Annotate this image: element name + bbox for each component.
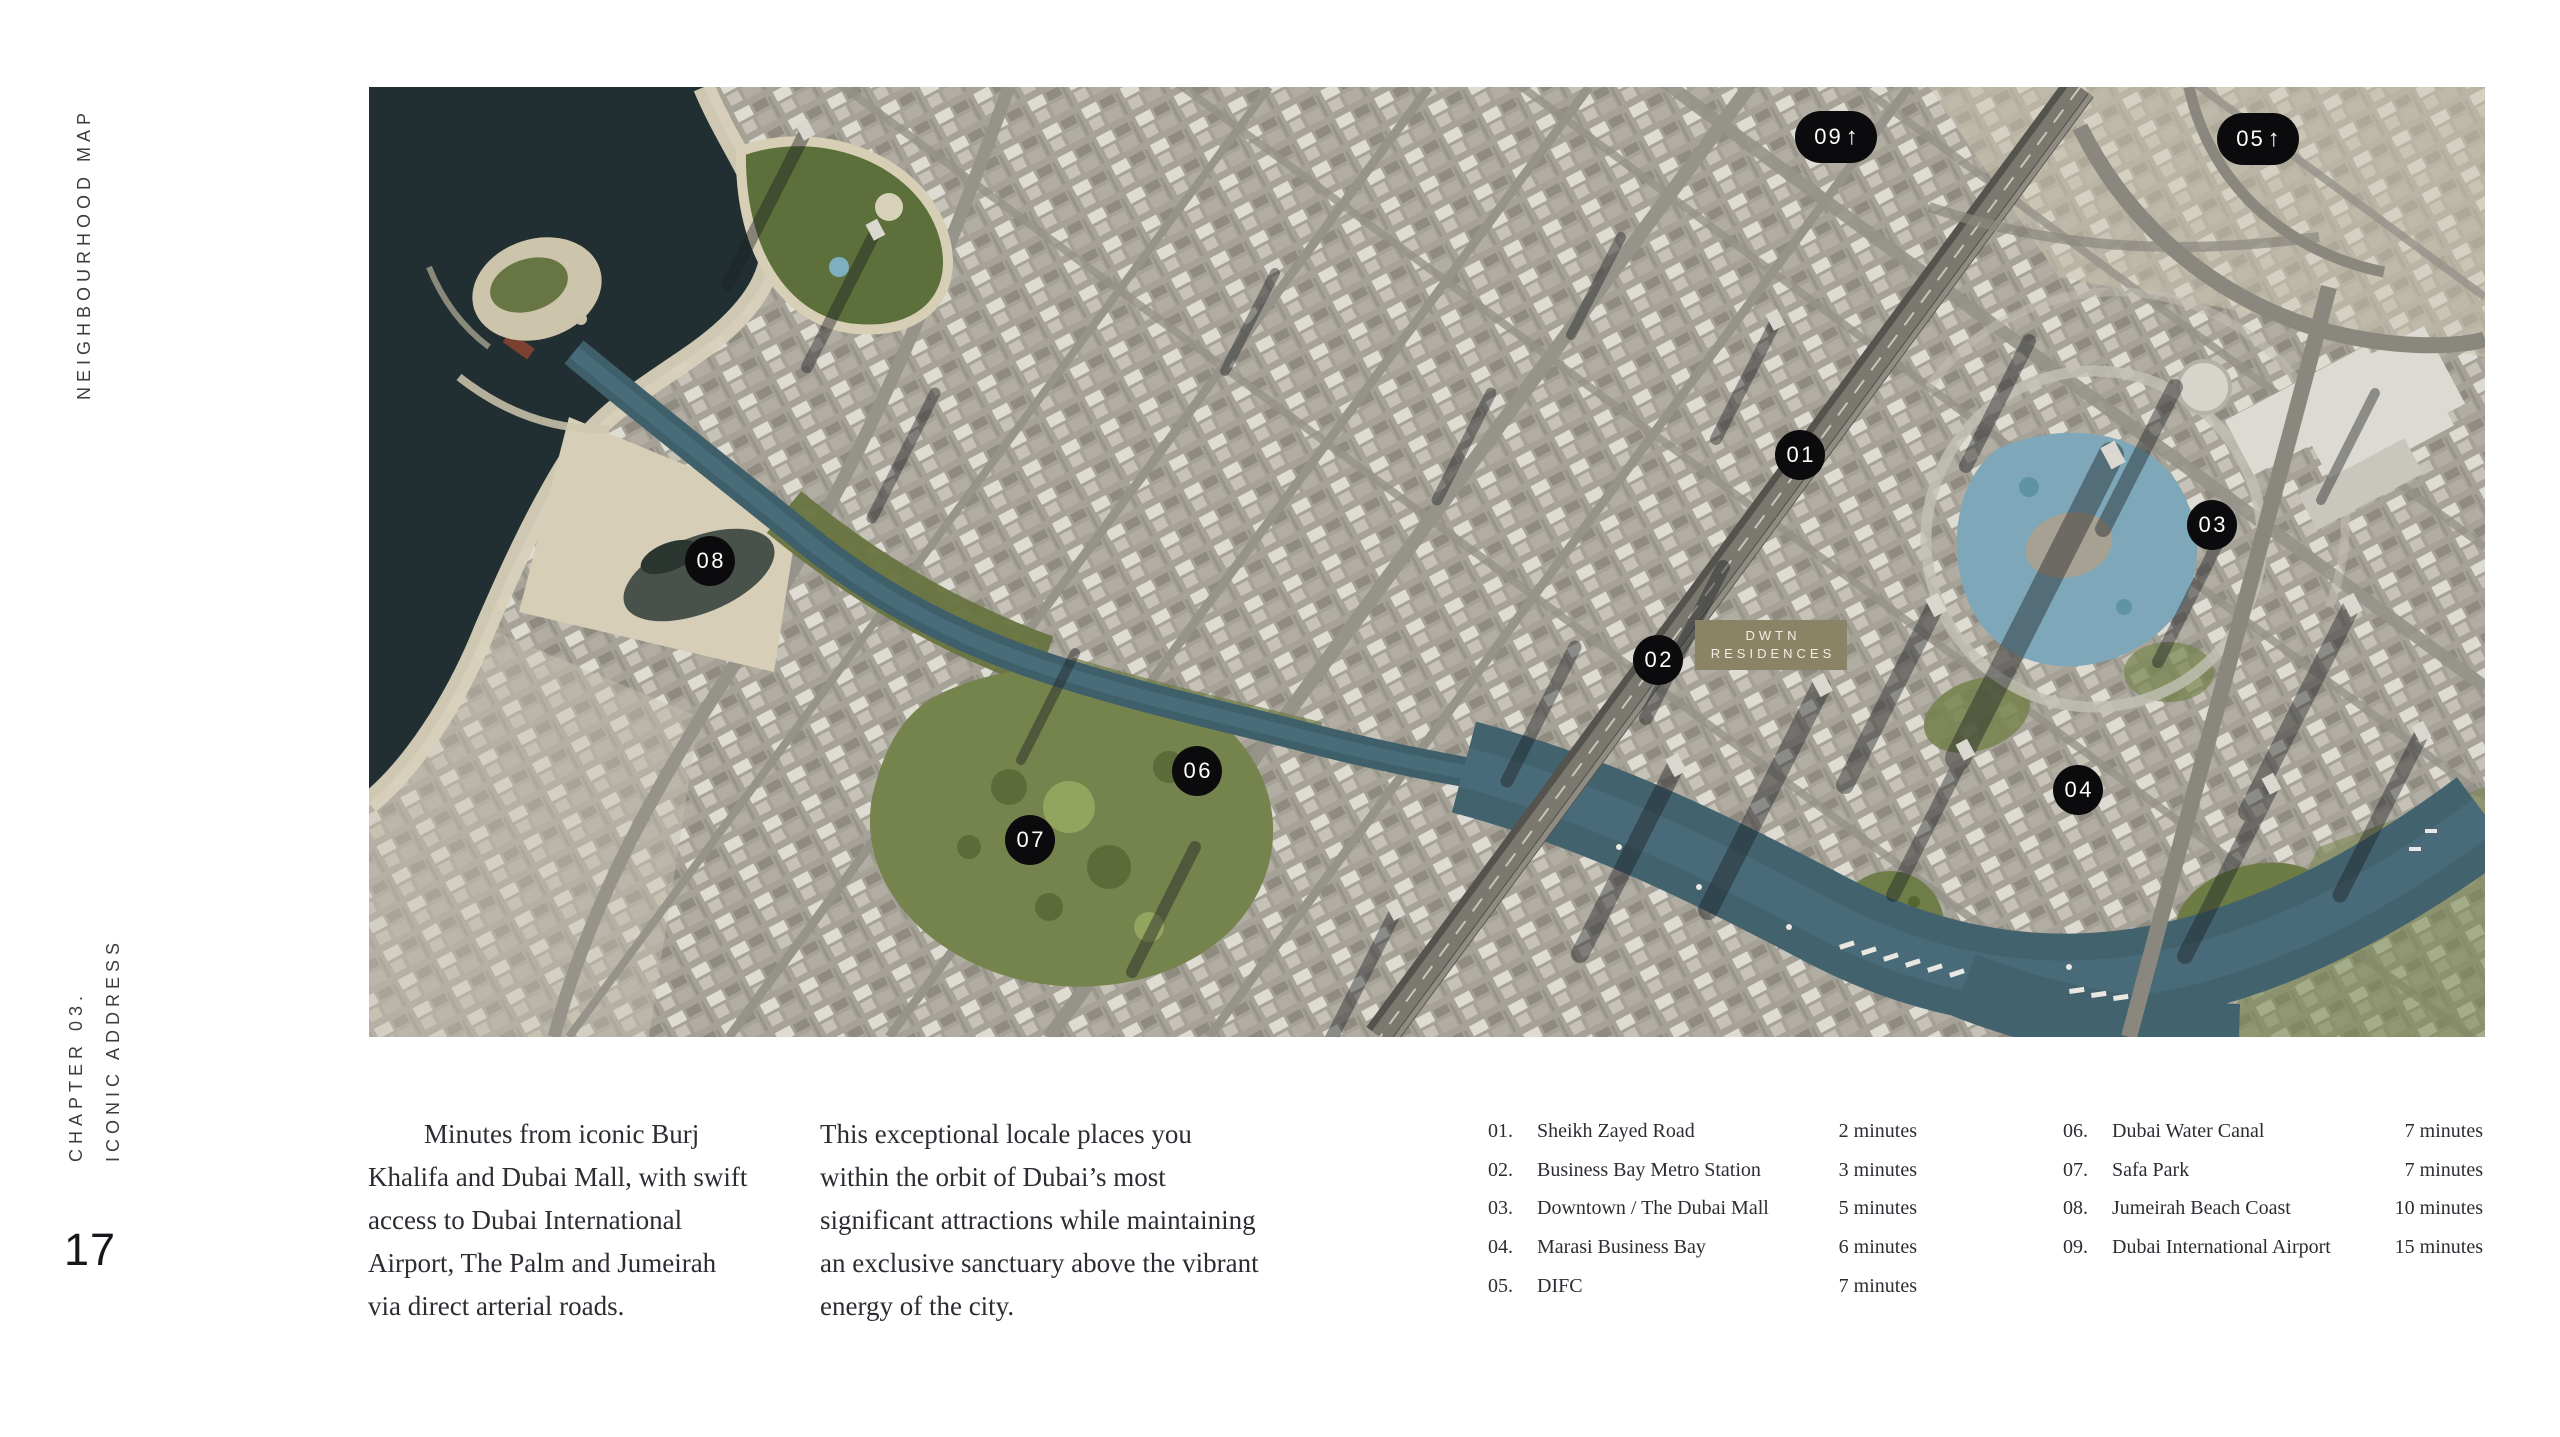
brochure-page: { "page_number": "17", "sidebar": { "sec… — [0, 0, 2560, 1437]
legend-place: Business Bay Metro Station — [1537, 1159, 1839, 1182]
legend-item: 01. Sheikh Zayed Road 2 minutes — [1488, 1112, 1917, 1151]
paragraph-line: access to Dubai International — [368, 1199, 747, 1242]
legend-number: 05. — [1488, 1275, 1537, 1298]
chapter-subtitle-vertical-label: ICONIC ADDRESS — [103, 938, 124, 1162]
property-label-line2: RESIDENCES — [1707, 645, 1836, 663]
map-marker-03: 03 — [2187, 500, 2237, 550]
legend-place: Downtown / The Dubai Mall — [1537, 1197, 1839, 1220]
paragraph-line: significant attractions while maintainin… — [820, 1199, 1259, 1242]
legend-item: 02. Business Bay Metro Station 3 minutes — [1488, 1151, 1917, 1190]
map-marker-06: 06 — [1172, 746, 1222, 796]
legend-time: 7 minutes — [2405, 1159, 2483, 1182]
paragraph-line: Airport, The Palm and Jumeirah — [368, 1242, 747, 1285]
legend-place: DIFC — [1537, 1275, 1839, 1298]
map-marker-04: 04 — [2053, 765, 2103, 815]
legend-item: 04. Marasi Business Bay 6 minutes — [1488, 1228, 1917, 1267]
legend-time: 10 minutes — [2395, 1197, 2483, 1220]
chapter-vertical-label: CHAPTER 03. — [66, 991, 87, 1162]
marker-number: 09 — [1814, 124, 1842, 150]
up-arrow-icon: ↑ — [1846, 125, 1858, 149]
marker-number: 01 — [1784, 442, 1816, 468]
map-marker-09: 09 ↑ — [1795, 111, 1877, 163]
map-marker-02: 02 — [1633, 635, 1683, 685]
legend-item: 09. Dubai International Airport 15 minut… — [2063, 1228, 2483, 1267]
map-marker-05: 05 ↑ — [2217, 113, 2299, 165]
legend-item: 03. Downtown / The Dubai Mall 5 minutes — [1488, 1190, 1917, 1229]
section-vertical-label: NEIGHBOURHOOD MAP — [74, 108, 95, 400]
neighbourhood-map: DWTN RESIDENCES 01 02 03 04 05 ↑ 06 07 0… — [369, 87, 2485, 1037]
legend-time: 7 minutes — [2405, 1120, 2483, 1143]
legend-place: Sheikh Zayed Road — [1537, 1120, 1839, 1143]
legend-time: 2 minutes — [1839, 1120, 1917, 1143]
paragraph-line: via direct arterial roads. — [368, 1285, 747, 1328]
legend-time: 7 minutes — [1839, 1275, 1917, 1298]
legend-time: 6 minutes — [1839, 1236, 1917, 1259]
intro-paragraph-1: Minutes from iconic Burj Khalifa and Dub… — [368, 1113, 747, 1328]
marker-number: 03 — [2196, 512, 2228, 538]
marker-number: 08 — [694, 548, 726, 574]
intro-paragraph-2: This exceptional locale places you withi… — [820, 1113, 1259, 1328]
legend-column-2: 06. Dubai Water Canal 7 minutes 07. Safa… — [2063, 1112, 2483, 1267]
property-label: DWTN RESIDENCES — [1695, 620, 1847, 670]
paragraph-line: within the orbit of Dubai’s most — [820, 1156, 1259, 1199]
legend-item: 06. Dubai Water Canal 7 minutes — [2063, 1112, 2483, 1151]
legend-place: Safa Park — [2112, 1159, 2405, 1182]
legend-number: 08. — [2063, 1197, 2112, 1220]
legend-number: 03. — [1488, 1197, 1537, 1220]
paragraph-line: energy of the city. — [820, 1285, 1259, 1328]
legend-place: Jumeirah Beach Coast — [2112, 1197, 2395, 1220]
legend-time: 3 minutes — [1839, 1159, 1917, 1182]
marker-number: 04 — [2062, 777, 2094, 803]
legend-number: 02. — [1488, 1159, 1537, 1182]
legend-item: 05. DIFC 7 minutes — [1488, 1267, 1917, 1306]
marker-number: 02 — [1642, 647, 1674, 673]
marker-number: 06 — [1181, 758, 1213, 784]
legend-place: Dubai Water Canal — [2112, 1120, 2405, 1143]
paragraph-line: This exceptional locale places you — [820, 1113, 1259, 1156]
legend-number: 06. — [2063, 1120, 2112, 1143]
legend-item: 07. Safa Park 7 minutes — [2063, 1151, 2483, 1190]
page-number: 17 — [64, 1224, 116, 1276]
legend-time: 15 minutes — [2395, 1236, 2483, 1259]
legend-number: 01. — [1488, 1120, 1537, 1143]
marker-number: 05 — [2236, 126, 2264, 152]
legend-place: Dubai International Airport — [2112, 1236, 2395, 1259]
legend-place: Marasi Business Bay — [1537, 1236, 1839, 1259]
legend-number: 07. — [2063, 1159, 2112, 1182]
paragraph-line: Minutes from iconic Burj — [368, 1113, 747, 1156]
property-label-line1: DWTN — [1742, 627, 1801, 645]
legend-number: 09. — [2063, 1236, 2112, 1259]
map-marker-07: 07 — [1005, 815, 1055, 865]
up-arrow-icon: ↑ — [2268, 127, 2280, 151]
paragraph-line: an exclusive sanctuary above the vibrant — [820, 1242, 1259, 1285]
marker-number: 07 — [1014, 827, 1046, 853]
legend-time: 5 minutes — [1839, 1197, 1917, 1220]
legend-number: 04. — [1488, 1236, 1537, 1259]
legend-column-1: 01. Sheikh Zayed Road 2 minutes 02. Busi… — [1488, 1112, 1917, 1306]
map-marker-01: 01 — [1775, 430, 1825, 480]
paragraph-line: Khalifa and Dubai Mall, with swift — [368, 1156, 747, 1199]
map-marker-08: 08 — [685, 536, 735, 586]
legend-item: 08. Jumeirah Beach Coast 10 minutes — [2063, 1190, 2483, 1229]
